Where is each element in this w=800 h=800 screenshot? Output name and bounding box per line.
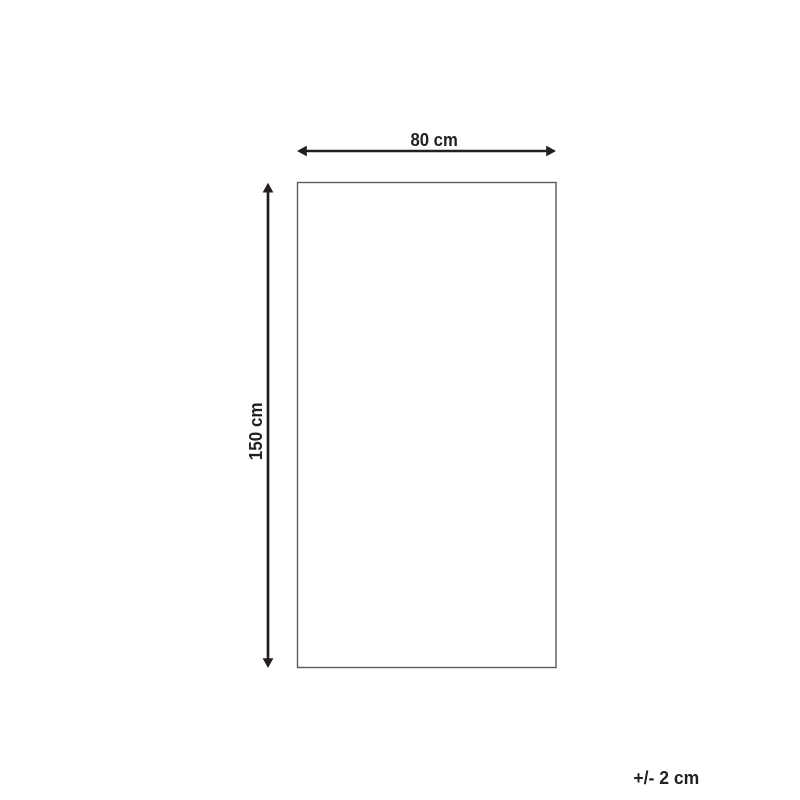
svg-text:150 cm: 150 cm: [246, 402, 266, 460]
svg-text:80 cm: 80 cm: [411, 130, 458, 150]
svg-text:+/- 2 cm: +/- 2 cm: [633, 768, 699, 788]
